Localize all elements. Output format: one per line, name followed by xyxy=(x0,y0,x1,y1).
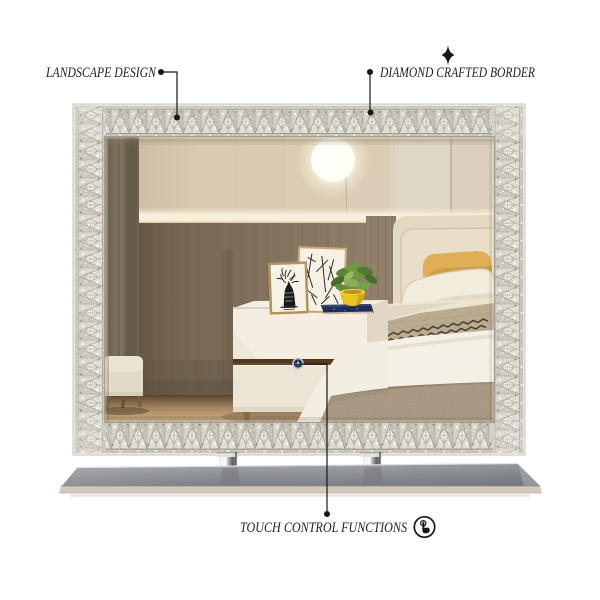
svg-text:LANDSCAPE DESIGN: LANDSCAPE DESIGN xyxy=(45,65,157,81)
svg-text:DIAMOND CRAFTED BORDER: DIAMOND CRAFTED BORDER xyxy=(379,65,535,81)
svg-text:TOUCH CONTROL FUNCTIONS: TOUCH CONTROL FUNCTIONS xyxy=(240,520,408,536)
